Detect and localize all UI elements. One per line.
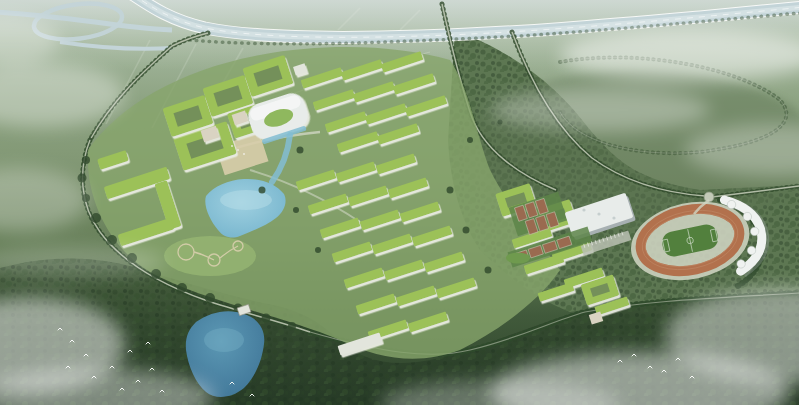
mini-field xyxy=(506,253,530,264)
cloud xyxy=(490,88,710,132)
lakeside-park xyxy=(164,236,256,276)
aerial-rendering-image xyxy=(0,0,799,405)
lake-highlight xyxy=(220,190,272,210)
